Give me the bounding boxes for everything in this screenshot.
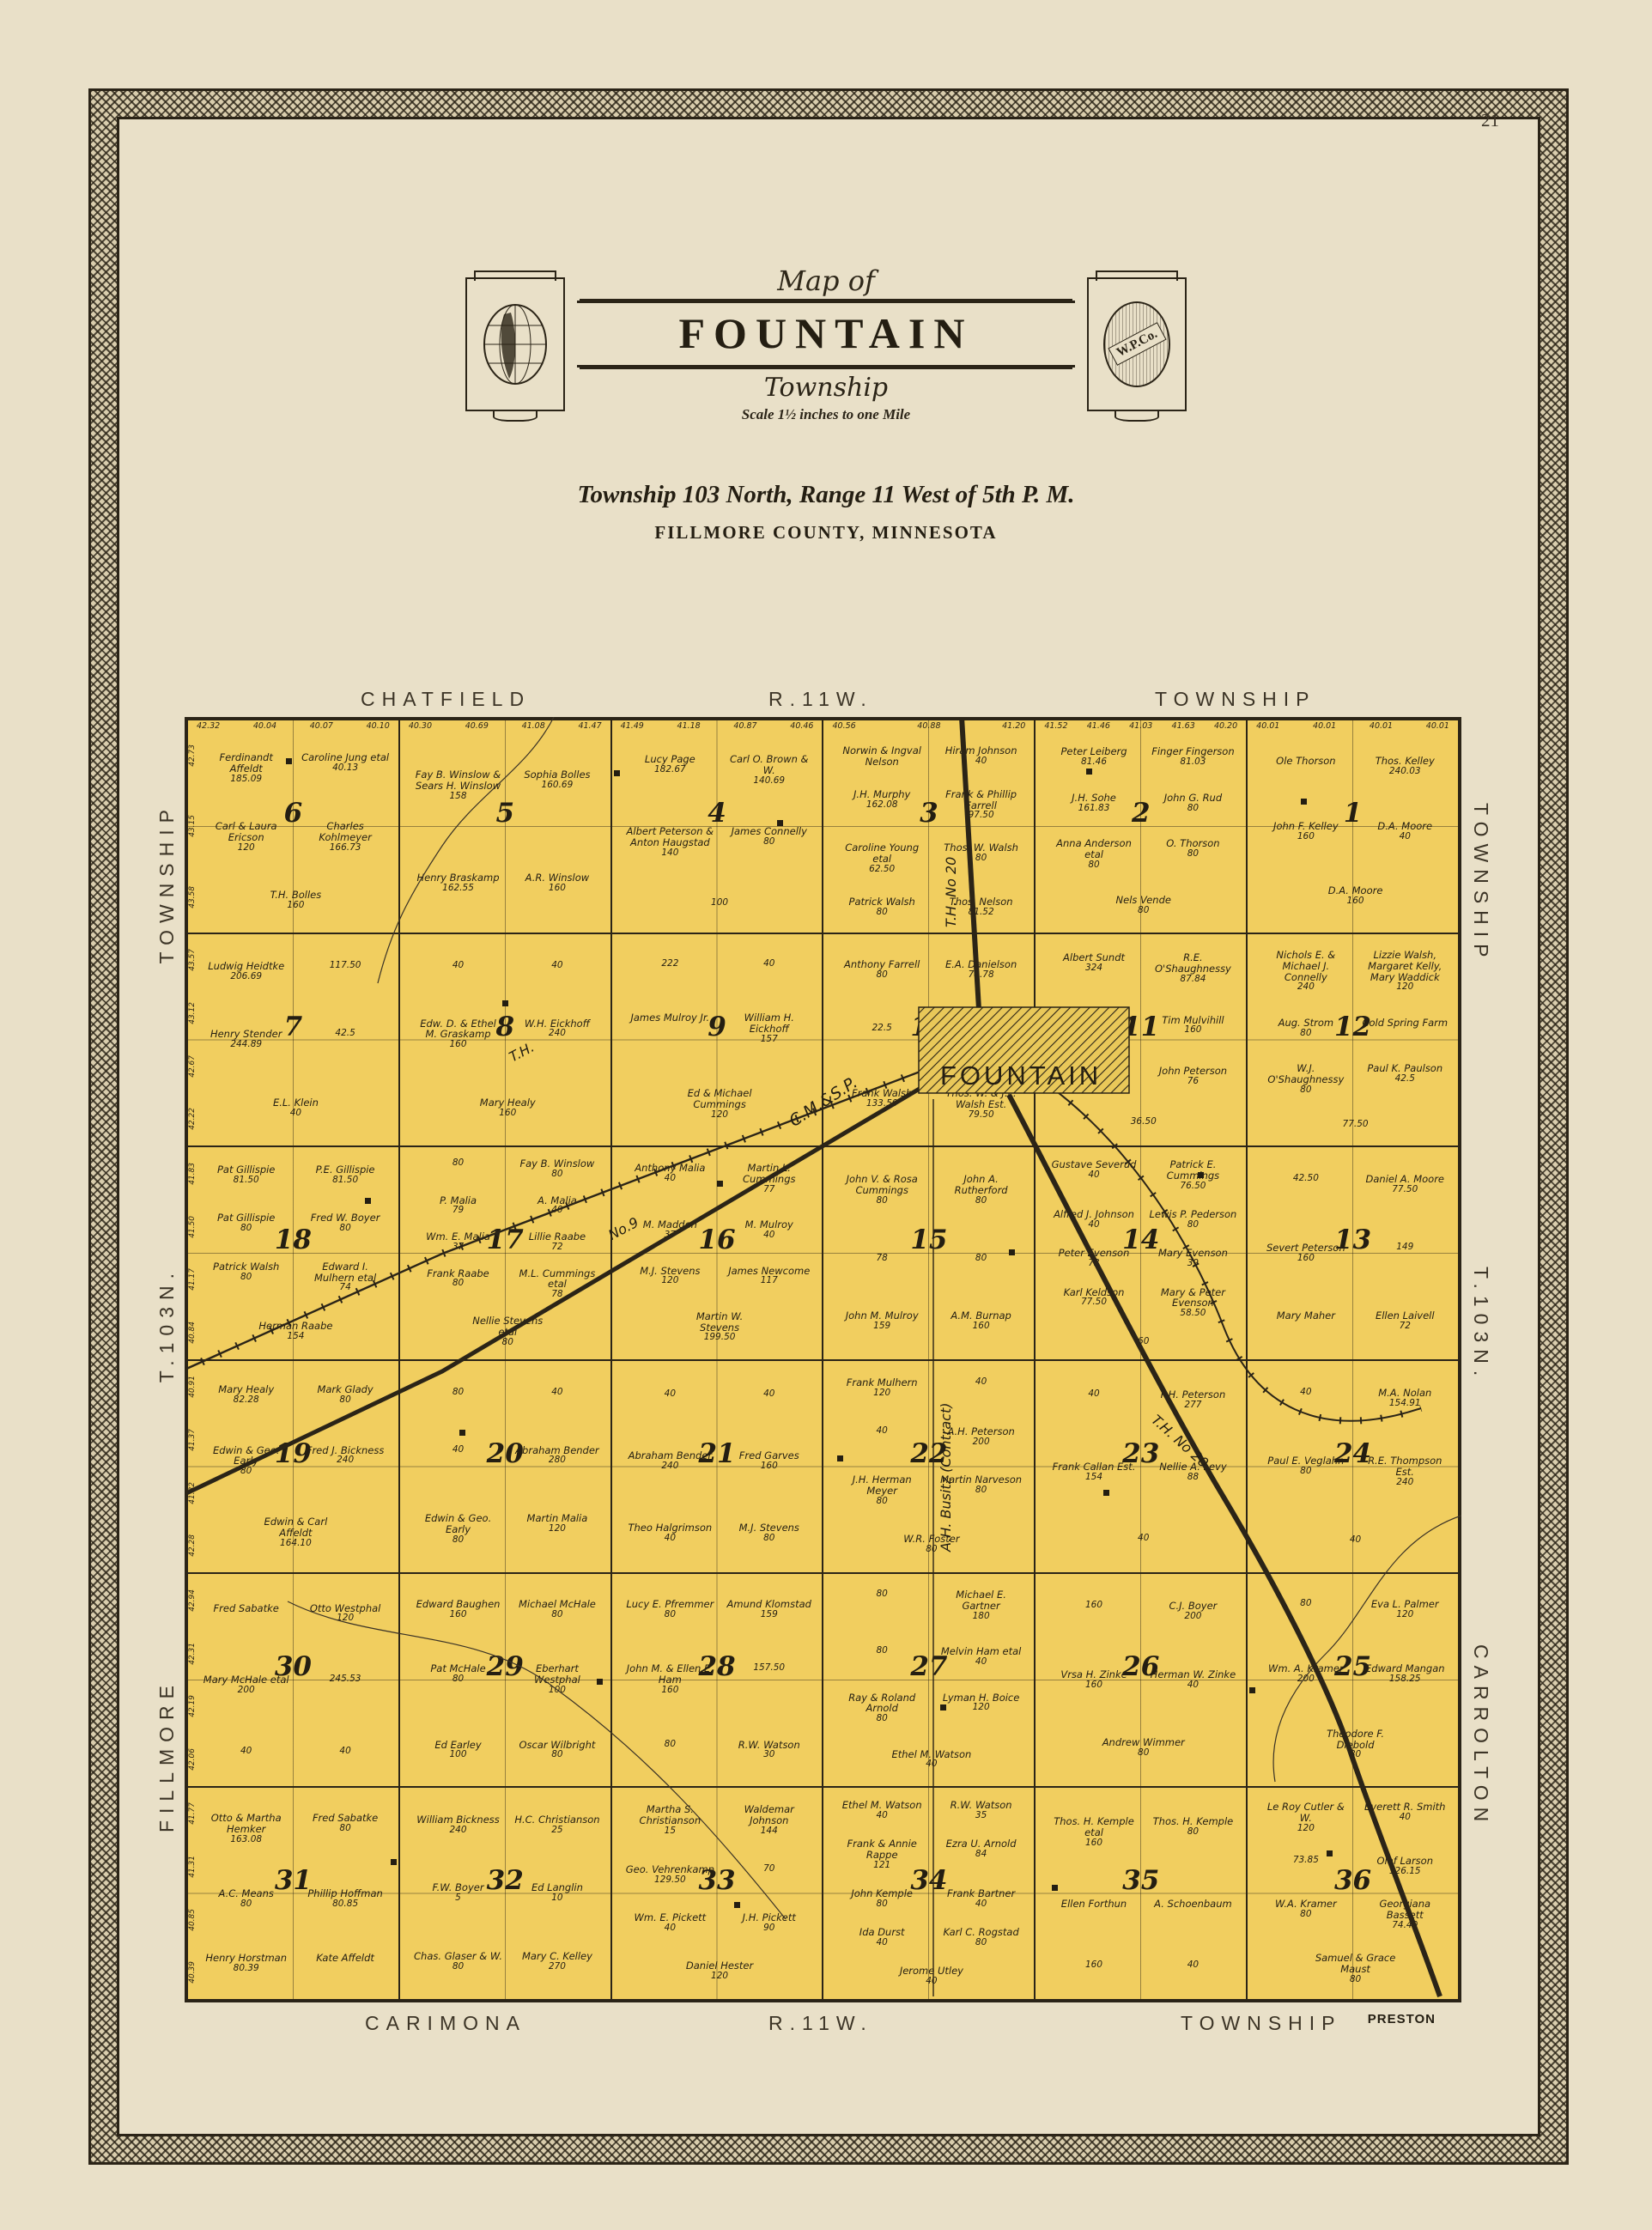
parcel-label: Frank Raabe80 (414, 1268, 503, 1301)
parcel-label: 80 (937, 1254, 1026, 1264)
parcel-label: Thos. H. Kemple etal160 (1049, 1816, 1139, 1849)
section-number: 33 (698, 1865, 735, 1896)
acreage-top-numbers: 41.5241.4641.0341.6340.20 (1036, 721, 1246, 731)
parcel-label: Rose Mulhern80 (937, 1024, 1026, 1045)
parcel-label: 36.50 (1099, 1117, 1188, 1127)
parcel-label: Martin W. Stevens199.50 (675, 1311, 764, 1344)
parcel-label: Otto & Martha Hemker163.08 (202, 1813, 291, 1845)
parcel-label: Ida Durst40 (837, 1927, 926, 1948)
parcel-label: A.H. Peterson200 (937, 1426, 1026, 1448)
parcel-label: M.A. Nolan154.91 (1360, 1388, 1449, 1409)
parcel-label: Ray & Roland Arnold80 (837, 1692, 926, 1725)
parcel-label: Herman Raabe154 (251, 1321, 340, 1342)
parcel-label: Finger Fingerson81.03 (1149, 746, 1238, 768)
parcel-label: Eva L. Palmer120 (1360, 1599, 1449, 1620)
parcel-label: Ellen Laivell72 (1360, 1310, 1449, 1332)
parcel-label: 100 (675, 898, 764, 908)
section-number: 36 (1334, 1865, 1371, 1896)
acreage-left-numbers: 41.8341.5041.1740.84 (188, 1147, 197, 1359)
parcel-label: Ludwig Heidtke206.69 (202, 961, 291, 982)
parcel-label: Thos. Kelley240.03 (1360, 756, 1449, 777)
section-3: 40.5640.8841.203Norwin & Ingval NelsonHi… (823, 720, 1035, 933)
section-number: 30 (275, 1651, 312, 1682)
edge-carrolton: CARROLTON (1469, 1644, 1492, 1828)
section-14: 14Gustave Severud40Patrick E. Cummings76… (1035, 1146, 1247, 1360)
parcel-label: 245.53 (301, 1674, 390, 1696)
section-32: 32William Bickness240H.C. Christianson25… (399, 1787, 611, 2001)
parcel-label: John A. Rutherford80 (937, 1174, 1026, 1206)
parcel-label: Anna Anderson etal80 (1049, 838, 1139, 871)
parcel-label: Anthony Malia40 (625, 1163, 714, 1195)
edge-carimona: CARIMONA (365, 2012, 526, 2035)
parcel-label: Daniel A. Moore77.50 (1360, 1174, 1449, 1195)
parcel-label: Ed Earley100 (414, 1740, 503, 1761)
parcel-label: R.E. Thompson Est.240 (1360, 1455, 1449, 1488)
parcel-label: 160 (1049, 1601, 1139, 1622)
parcel-label: Mary Maher (1261, 1310, 1351, 1332)
parcel-list: Ole ThorsonThos. Kelley240.03John F. Kel… (1256, 734, 1455, 929)
section-number: 17 (487, 1224, 524, 1255)
parcel-label: Martin Malia120 (513, 1513, 602, 1546)
parcel-label: Mary C. Kelley270 (513, 1951, 602, 1972)
parcel-label: Albert Peterson & Anton Haugstad140 (625, 826, 714, 859)
parcel-label: A. Malia40 (513, 1195, 602, 1217)
parcel-label: Chas. Glaser & W.80 (414, 1951, 503, 1972)
parcel-label: 40 (513, 961, 602, 971)
section-13: 1342.50Daniel A. Moore77.50Severt Peters… (1247, 1146, 1459, 1360)
parcel-label: Fred Sabatke80 (301, 1813, 390, 1845)
parcel-label: R.E. O'Shaughnessy87.84 (1149, 952, 1238, 985)
parcel-label: Frank & Phillip Farrell97.50 (937, 789, 1026, 822)
parcel-label: Amund Klomstad159 (725, 1599, 814, 1620)
parcel-label: Thos. W. Walsh80 (937, 842, 1026, 875)
parcel-label: 40 (1149, 1960, 1238, 1971)
parcel-label: R.W. Watson35 (937, 1800, 1026, 1821)
section-26: 26160C.J. Boyer200Vrsa H. Zinke160Herman… (1035, 1573, 1247, 1787)
parcel-label: Henry Horstman80.39 (202, 1953, 291, 1974)
parcel-list: Norwin & Ingval NelsonHiram Johnson40J.H… (832, 734, 1030, 929)
section-25: 2580Eva L. Palmer120Wm. A. Kramer200Edwa… (1247, 1573, 1459, 1787)
parcel-label: Gustave Severud40 (1049, 1159, 1139, 1192)
parcel-label: Michael E. Gartner180 (937, 1589, 1026, 1622)
parcel-label: Norwin & Ingval Nelson (837, 745, 926, 768)
parcel-label: Ezra U. Arnold84 (937, 1838, 1026, 1871)
section-number: 8 (495, 1012, 514, 1042)
section-35: 35Thos. H. Kemple etal160Thos. H. Kemple… (1035, 1787, 1247, 2001)
parcel-label: 40 (1261, 1388, 1351, 1409)
parcel-label: Sophia Bolles160.69 (513, 769, 602, 802)
edge-township-right: TOWNSHIP (1469, 803, 1492, 964)
section-34: 34Ethel M. Watson40R.W. Watson35Frank & … (823, 1787, 1035, 2001)
parcel-label: James Connelly80 (725, 826, 814, 859)
parcel-label: John V. & Rosa Cummings80 (837, 1174, 926, 1206)
parcel-label: M.L. Cummings etal78 (513, 1268, 602, 1301)
parcel-label: 40 (1311, 1535, 1400, 1546)
parcel-label: Caroline Jung etal40.13 (301, 752, 390, 785)
parcel-label: A. Schoenbaum (1149, 1899, 1238, 1910)
plat-map-page: 21 Map of FOUNTAIN Township Scale 1½ inc… (0, 0, 1652, 2230)
parcel-label: Fred J. Bickness240 (301, 1445, 390, 1478)
section-7: 43.5743.1242.6742.227Ludwig Heidtke206.6… (187, 933, 399, 1147)
parcel-label: John Peterson76 (1149, 1066, 1238, 1087)
page-number: 21 (1481, 110, 1499, 131)
parcel-list: Peter Leiberg81.46Finger Fingerson81.03J… (1044, 734, 1242, 929)
acreage-left-numbers: 43.5743.1242.6742.22 (188, 934, 197, 1146)
parcel-label: W.A. Kramer80 (1261, 1899, 1351, 1931)
section-4: 41.4941.1840.8740.464Lucy Page182.67Carl… (611, 720, 823, 933)
parcel-label: T.H. Bolles160 (251, 890, 340, 911)
parcel-label: 80 (837, 1589, 926, 1622)
parcel-label: M.J. Stevens80 (725, 1522, 814, 1544)
parcel-label: Anthony Farrell80 (837, 959, 926, 981)
section-number: 23 (1122, 1438, 1159, 1469)
section-number: 9 (708, 1012, 726, 1042)
title-block: Map of FOUNTAIN Township Scale 1½ inches… (577, 264, 1075, 423)
section-23: 2340P.H. Peterson277Frank Callan Est.154… (1035, 1360, 1247, 1574)
parcel-label: James Newcome117 (725, 1266, 814, 1287)
wpco-logo: W.P.Co. (1103, 301, 1170, 387)
section-number: 3 (920, 798, 938, 829)
map-scale: Scale 1½ inches to one Mile (577, 406, 1075, 423)
parcel-label: 40 (725, 1389, 814, 1400)
section-20: 20804040Abraham Bender280Edwin & Geo. Ea… (399, 1360, 611, 1574)
parcel-label: 42.50 (1261, 1174, 1351, 1195)
title-map-of: Map of (577, 264, 1075, 297)
acreage-left-numbers: 41.7741.3140.8540.39 (188, 1788, 197, 2000)
section-number: 18 (275, 1224, 312, 1255)
section-number: 10 (910, 1012, 947, 1042)
parcel-label: J.H. Herman Meyer80 (837, 1474, 926, 1507)
section-number: 25 (1334, 1651, 1371, 1682)
parcel-label: 60 (1099, 1337, 1188, 1347)
parcel-label: Thos. H. Kemple80 (1149, 1816, 1238, 1849)
parcel-label: 157.50 (725, 1663, 814, 1696)
parcel-label: Carl O. Brown & W.140.69 (725, 754, 814, 787)
parcel-list: Fay B. Winslow & Sears H. Winslow158Soph… (409, 734, 607, 929)
section-29: 29Edward Baughen160Michael McHale80Pat M… (399, 1573, 611, 1787)
section-number: 29 (487, 1651, 524, 1682)
parcel-label: Nels Vende80 (1099, 895, 1188, 916)
acreage-top-numbers: 40.0140.0140.0140.01 (1248, 721, 1458, 731)
parcel-label: Lizzie Walsh, Margaret Kelly, Mary Waddi… (1360, 950, 1449, 993)
parcel-label: Henry Stender244.89 (202, 1029, 291, 1050)
parcel-label: Nellie A. Levy88 (1149, 1461, 1238, 1483)
parcel-label: Fay B. Winslow & Sears H. Winslow158 (414, 769, 503, 802)
section-number: 6 (284, 798, 303, 829)
parcel-label: John F. Kelley160 (1261, 821, 1351, 842)
parcel-label: Georgiana Bassett74.40 (1360, 1899, 1449, 1931)
section-number: 13 (1334, 1224, 1371, 1255)
section-31: 41.7741.3140.8540.3931Otto & Martha Hemk… (187, 1787, 399, 2001)
parcel-label: 40 (625, 1389, 714, 1400)
parcel-label: Edward Mangan158.25 (1360, 1663, 1449, 1685)
parcel-label: A.R. Winslow160 (513, 872, 602, 894)
parcel-label: Ethel M. Watson40 (837, 1800, 926, 1821)
parcel-label: Ethel M. Watson40 (887, 1749, 976, 1771)
section-number: 7 (284, 1012, 303, 1042)
parcel-label: Oscar Wilbright80 (513, 1740, 602, 1761)
parcel-label: Olaf Larson126.15 (1360, 1856, 1449, 1877)
parcel-label: J.H. Sohe161.83 (1049, 793, 1139, 814)
parcel-label: Henry Braskamp162.55 (414, 872, 503, 894)
parcel-label: Thos. W. & J.L. Walsh Est.79.50 (937, 1088, 1026, 1121)
edge-preston: PRESTON (1368, 2012, 1436, 2026)
section-2: 41.5241.4641.0341.6340.202Peter Leiberg8… (1035, 720, 1247, 933)
parcel-label: Frank Bartner40 (937, 1888, 1026, 1910)
parcel-label: Ellen Forthun (1049, 1899, 1139, 1910)
parcel-label: Paul K. Paulson42.5 (1360, 1063, 1449, 1096)
acreage-top-numbers: 40.5640.8841.20 (823, 721, 1034, 731)
section-number: 26 (1122, 1651, 1159, 1682)
parcel-label: Ole Thorson (1261, 756, 1351, 777)
parcel-label: Kate Affeldt (301, 1953, 390, 1974)
section-number: 14 (1122, 1224, 1159, 1255)
parcel-label: 70 (725, 1864, 814, 1886)
parcel-label: Lyman H. Boice120 (937, 1692, 1026, 1725)
parcel-label: 77.50 (1311, 1120, 1400, 1130)
parcel-label: William H. Eickhoff157 (725, 1012, 814, 1045)
parcel-label: Fred W. Boyer80 (301, 1212, 390, 1234)
section-30: 42.9442.3142.1942.0630Fred SabatkeOtto W… (187, 1573, 399, 1787)
section-18: 41.8341.5041.1740.8418Pat Gillispie81.50… (187, 1146, 399, 1360)
parcel-label: 80 (414, 1388, 503, 1398)
parcel-label: Charles Kohlmeyer166.73 (301, 821, 390, 854)
parcel-label: Frank Mulhern120 (837, 1377, 926, 1399)
section-8: 84040Edw. D. & Ethel M. Graskamp160W.H. … (399, 933, 611, 1147)
section-15: 15John V. & Rosa Cummings80John A. Ruthe… (823, 1146, 1035, 1360)
parcel-label: Ed Langlin10 (513, 1882, 602, 1904)
parcel-label: J.H. Murphy162.08 (837, 789, 926, 822)
parcel-label: Melvin Ham etal40 (937, 1646, 1026, 1668)
parcel-label: E.L. Klein40 (251, 1097, 340, 1119)
parcel-label: Carl & Laura Ericson120 (202, 821, 291, 854)
section-number: 1 (1344, 798, 1363, 829)
parcel-label: Cold Spring Farm (1360, 1018, 1449, 1039)
parcel-label: Patrick Walsh80 (202, 1261, 291, 1294)
parcel-label: 40 (202, 1747, 291, 1757)
section-number: 35 (1122, 1865, 1159, 1896)
section-number: 5 (495, 798, 514, 829)
parcel-label: John M. Mulroy159 (837, 1310, 926, 1332)
title-cartouche: Map of FOUNTAIN Township Scale 1½ inches… (465, 264, 1187, 423)
section-number: 32 (487, 1865, 524, 1896)
section-17: 1780Fay B. Winslow80P. Malia79A. Malia40… (399, 1146, 611, 1360)
parcel-label: J.H. Pickett90 (725, 1912, 814, 1934)
acreage-top-numbers: 41.4941.1840.8740.46 (612, 721, 823, 731)
parcel-label: 40 (301, 1747, 390, 1757)
parcel-label: E.A. Danielson78.78 (937, 959, 1026, 981)
parcel-label: Karl Keldson77.50 (1049, 1287, 1139, 1320)
edge-chatfield: CHATFIELD (361, 688, 531, 711)
edge-township-bottom: TOWNSHIP (1181, 2012, 1342, 2035)
parcel-label: Tim Mulvihill160 (1149, 1015, 1238, 1036)
parcel-label: 80 (625, 1740, 714, 1761)
parcel-label: Karl C. Rogstad80 (937, 1927, 1026, 1948)
parcel-label: Abraham Bender280 (513, 1445, 602, 1467)
parcel-label: Hiram Johnson40 (937, 745, 1026, 768)
parcel-label: Martin L. Cummings77 (725, 1163, 814, 1195)
parcel-label: Patrick Walsh80 (837, 896, 926, 918)
plat-map: CHATFIELD R.11W. TOWNSHIP CARIMONA R.11W… (185, 717, 1461, 2002)
township-name: FOUNTAIN (679, 309, 974, 357)
parcel-label: Caroline Young etal62.50 (837, 842, 926, 875)
parcel-label: Peter Leiberg81.46 (1049, 746, 1139, 768)
parcel-label: M. Mulroy40 (725, 1219, 814, 1241)
globe-icon (465, 277, 565, 411)
parcel-label: W.J. O'Shaughnessy80 (1261, 1063, 1351, 1096)
parcel-label: W.H. Eickhoff240 (513, 1018, 602, 1051)
parcel-label: Otto Westphal120 (301, 1603, 390, 1625)
acreage-top-numbers: 42.3240.0440.0740.10 (188, 721, 398, 731)
edge-township-top: TOWNSHIP (1155, 688, 1316, 711)
parcel-label: Martin Narveson80 (937, 1474, 1026, 1507)
section-24: 2440M.A. Nolan154.91Paul E. Veglahn80R.E… (1247, 1360, 1459, 1574)
parcel-label: A.M. Burnap160 (937, 1310, 1026, 1332)
section-number: 2 (1132, 798, 1151, 829)
parcel-label: Theo Halgrimson40 (625, 1522, 714, 1544)
parcel-label: Lucy Page182.67 (625, 754, 714, 787)
section-number: 31 (275, 1865, 312, 1896)
section-number: 24 (1334, 1438, 1371, 1469)
parcel-label: Herman Miller117 (1049, 1066, 1139, 1087)
section-11: 11Albert Sundt324R.E. O'Shaughnessy87.84… (1035, 933, 1247, 1147)
township-range-line: Township 103 North, Range 11 West of 5th… (0, 481, 1652, 509)
edge-t103n-right: T.103N. (1469, 1267, 1492, 1382)
parcel-label: R.W. Watson30 (725, 1740, 814, 1761)
parcel-label: Andrew Wimmer80 (1099, 1737, 1188, 1759)
parcel-label: Patrick E. Cummings76.50 (1149, 1159, 1238, 1192)
edge-fillmore: FILLMORE (155, 1679, 179, 1832)
section-number: 19 (275, 1438, 312, 1469)
parcel-label: Daniel Hester120 (675, 1960, 764, 1982)
parcel-label: H.C. Christianson25 (513, 1814, 602, 1836)
section-22: 22Frank Mulhern1204040A.H. Peterson200J.… (823, 1360, 1035, 1574)
parcel-label: Lillie Raabe72 (513, 1231, 602, 1253)
parcel-label: Nellie Stevens etal80 (463, 1316, 552, 1348)
parcel-label: Herman W. Zinke40 (1149, 1669, 1238, 1691)
section-1: 40.0140.0140.0140.011Ole ThorsonThos. Ke… (1247, 720, 1459, 933)
parcel-label: P.H. Peterson277 (1149, 1389, 1238, 1411)
parcel-label: 160 (1049, 1960, 1139, 1971)
wpco-logo-text: W.P.Co. (1108, 322, 1166, 366)
section-6: 42.3240.0440.0740.1042.7343.1543.586Ferd… (187, 720, 399, 933)
parcel-label: C.J. Boyer200 (1149, 1601, 1238, 1622)
section-grid: 42.3240.0440.0740.1042.7343.1543.586Ferd… (185, 717, 1461, 2002)
acreage-left-numbers: 42.7343.1543.58 (188, 720, 197, 933)
acreage-left-numbers: 42.9442.3142.1942.06 (188, 1574, 197, 1786)
parcel-label: Nichols E. & Michael J. Connelly240 (1261, 950, 1351, 993)
parcel-label: P.E. Gillispie81.50 (301, 1164, 390, 1186)
parcel-label: Edw. D. & Ethel M. Graskamp160 (414, 1018, 503, 1051)
parcel-label: 149 (1360, 1243, 1449, 1264)
parcel-label: Albert Sundt324 (1049, 952, 1139, 985)
parcel-label: Everett R. Smith40 (1360, 1802, 1449, 1834)
edge-township-left: TOWNSHIP (155, 803, 179, 964)
county-state-line: FILLMORE COUNTY, MINNESOTA (0, 522, 1652, 544)
title-township: Township (577, 373, 1075, 403)
parcel-label: 40 (1049, 1389, 1139, 1411)
parcel-label: Fay B. Winslow80 (513, 1158, 602, 1180)
parcel-label: Edwin & Carl Affeldt164.10 (251, 1516, 340, 1549)
parcel-label: 80 (1261, 1599, 1351, 1620)
parcel-label: Eberhart Westphal100 (513, 1663, 602, 1696)
parcel-label: Edward Baughen160 (414, 1599, 503, 1620)
edge-range-bottom: R.11W. (768, 2012, 873, 2035)
publisher-badge: W.P.Co. (1087, 277, 1187, 411)
parcel-label: Pat Gillispie81.50 (202, 1164, 291, 1186)
parcel-label: Fred Garves160 (725, 1450, 814, 1472)
section-27: 2780Michael E. Gartner18080Melvin Ham et… (823, 1573, 1035, 1787)
parcel-label: M.J. Stevens120 (625, 1266, 714, 1287)
parcel-label: 222 (625, 959, 714, 969)
parcel-label: 40 (937, 1377, 1026, 1399)
section-number: 4 (708, 798, 726, 829)
parcel-label: 80 (414, 1158, 503, 1180)
parcel-label: W.R. Foster80 (887, 1534, 976, 1555)
parcel-label: Mary Healy82.28 (202, 1384, 291, 1406)
section-16: 16Anthony Malia40Martin L. Cummings77M. … (611, 1146, 823, 1360)
parcel-label: Mary & Peter Evenson58.50 (1149, 1287, 1238, 1320)
parcel-label: 40 (414, 961, 503, 971)
parcel-label: Lucy E. Pfremmer80 (625, 1599, 714, 1620)
parcel-label: Edwin & Geo. Early80 (414, 1513, 503, 1546)
section-number: 22 (910, 1438, 947, 1469)
parcel-label: Wm. E. Pickett40 (625, 1912, 714, 1934)
section-number: 12 (1334, 1012, 1371, 1042)
parcel-label: Thos. Nelson81.52 (937, 896, 1026, 918)
parcel-label: Lewis P. Pederson80 (1149, 1209, 1238, 1230)
parcel-label: John G. Rud80 (1149, 793, 1238, 814)
parcel-label: D.A. Moore40 (1360, 821, 1449, 842)
parcel-list: Ferdinandt Affeldt185.09Caroline Jung et… (197, 734, 395, 929)
section-number: 20 (487, 1438, 524, 1469)
parcel-label: Mary Healy160 (463, 1097, 552, 1119)
section-number: 15 (910, 1224, 947, 1255)
parcel-label: 42.5 (301, 1029, 390, 1050)
parcel-label: Phillip Hoffman80.85 (301, 1888, 390, 1910)
section-33: 33Martha S. Christianson15Waldemar Johns… (611, 1787, 823, 2001)
parcel-label: Ed & Michael Cummings120 (675, 1088, 764, 1121)
section-5: 40.3040.6941.0841.475Fay B. Winslow & Se… (399, 720, 611, 933)
section-9: 922240James Mulroy Jr.William H. Eickhof… (611, 933, 823, 1147)
section-21: 214040Abraham Bender240Fred Garves160The… (611, 1360, 823, 1574)
parcel-label: Waldemar Johnson144 (725, 1804, 814, 1837)
parcel-label: James Mulroy Jr. (625, 1012, 714, 1045)
title-band: FOUNTAIN (577, 301, 1075, 368)
section-28: 28Lucy E. Pfremmer80Amund Klomstad159Joh… (611, 1573, 823, 1787)
parcel-label: Michael McHale80 (513, 1599, 602, 1620)
parcel-list: Lucy Page182.67Carl O. Brown & W.140.69A… (621, 734, 819, 929)
section-10: 10Anthony Farrell80E.A. Danielson78.7822… (823, 933, 1035, 1147)
parcel-label: Ferdinandt Affeldt185.09 (202, 752, 291, 785)
section-36: 36Le Roy Cutler & W.120Everett R. Smith4… (1247, 1787, 1459, 2001)
parcel-label: Martha S. Christianson15 (625, 1804, 714, 1837)
parcel-label: Le Roy Cutler & W.120 (1261, 1802, 1351, 1834)
parcel-label: Jerome Utley40 (887, 1966, 976, 1987)
parcel-label: O. Thorson80 (1149, 838, 1238, 871)
section-19: 40.9141.3741.8242.2819Mary Healy82.28Mar… (187, 1360, 399, 1574)
section-number: 11 (1122, 1012, 1159, 1042)
parcel-label: D.A. Moore160 (1311, 885, 1400, 907)
section-number: 34 (910, 1865, 947, 1896)
acreage-top-numbers: 40.3040.6941.0841.47 (400, 721, 610, 731)
parcel-label: Mary Evenson39 (1149, 1248, 1238, 1269)
section-12: 12Nichols E. & Michael J. Connelly240Liz… (1247, 933, 1459, 1147)
parcel-label: 40 (725, 959, 814, 969)
parcel-label: William Bickness240 (414, 1814, 503, 1836)
parcel-label: 40 (1099, 1534, 1188, 1544)
parcel-label: P. Malia79 (414, 1195, 503, 1217)
